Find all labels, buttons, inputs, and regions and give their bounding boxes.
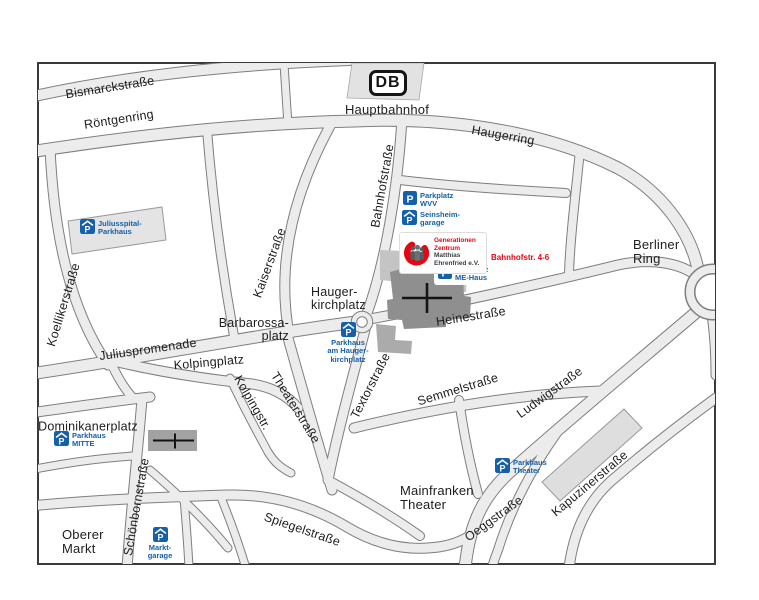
gz-text: Generationen Zentrum Matthias Ehrenfried…	[434, 236, 479, 270]
parking-theater[interactable]: Parkhaus Theater	[495, 458, 547, 476]
garage-icon	[495, 458, 510, 473]
place-label-berliner-ring: Berliner Ring	[633, 238, 679, 266]
db-logo: DB	[369, 70, 407, 96]
parking-hauger-kirchplatz[interactable]: Parkhaus am Hauger- kirchplatz	[319, 322, 377, 364]
garage-icon	[54, 431, 69, 446]
parking-wvv[interactable]: Parkplatz WVV	[403, 191, 453, 209]
gz-line2: Zentrum	[434, 245, 479, 253]
parking-seinsheim[interactable]: Seinsheim- garage	[402, 210, 460, 228]
place-label-barbarossaplatz: Barbarossa- platz	[205, 317, 289, 344]
gz-line4: Ehrenfried e.V.	[434, 260, 479, 268]
berliner-ring-roundabout	[690, 269, 736, 315]
gz-address: Bahnhofstr. 4-6	[491, 253, 549, 262]
garage-icon	[80, 219, 95, 234]
parking-label: Markt- garage	[148, 543, 173, 561]
generationen-zentrum-logo: Generationen Zentrum Matthias Ehrenfried…	[399, 232, 487, 274]
gz-swirl-icon	[403, 236, 431, 270]
gz-line1: Generationen	[434, 237, 479, 245]
place-label-hauptbahnhof: Hauptbahnhof	[345, 103, 429, 117]
map: P P	[0, 0, 759, 600]
parking-label: Seinsheim- garage	[420, 210, 460, 228]
gz-line3: Matthias	[434, 252, 479, 260]
place-label-oberer-markt: Oberer Markt	[62, 528, 104, 556]
place-label-mainfranken-theater: Mainfranken Theater	[400, 484, 474, 512]
garage-icon	[153, 527, 168, 542]
parking-icon	[403, 191, 417, 205]
parking-juliusspital[interactable]: Juliusspital- Parkhaus	[80, 219, 142, 237]
parking-label: Parkhaus MITTE	[72, 431, 106, 449]
parking-mitte[interactable]: Parkhaus MITTE	[54, 431, 106, 449]
garage-icon	[402, 210, 417, 225]
garage-icon	[341, 322, 356, 337]
parking-markt-garage[interactable]: Markt- garage	[138, 527, 182, 561]
parking-label: Parkhaus am Hauger- kirchplatz	[327, 338, 368, 364]
place-label-haugerkirchplatz: Hauger- kirchplatz	[311, 286, 366, 313]
parking-label: Juliusspital- Parkhaus	[98, 219, 142, 237]
parking-label: Parkplatz WVV	[420, 191, 453, 209]
parking-label: Parkhaus Theater	[513, 458, 547, 476]
